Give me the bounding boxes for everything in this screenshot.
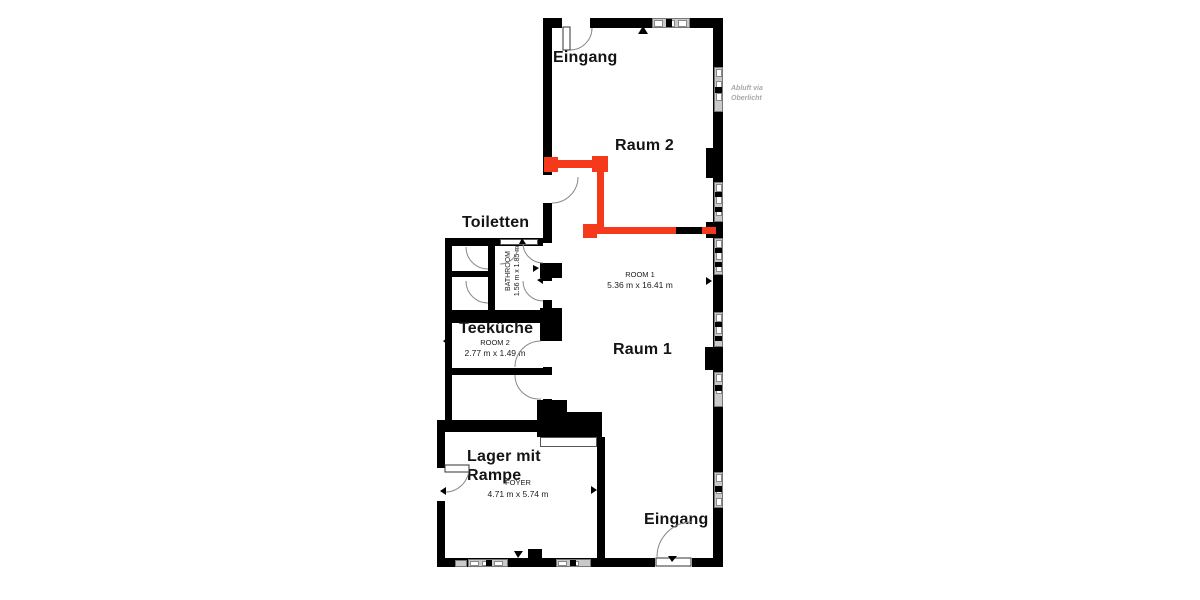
door-opening <box>437 468 445 501</box>
wall-segment <box>445 368 545 375</box>
label-teekueche-info: ROOM 2 2.77 m x 1.49 m <box>452 338 538 358</box>
wall-segment <box>706 148 723 178</box>
swing-marker-right-wall <box>706 277 712 285</box>
window-mark <box>715 207 722 212</box>
red-partition-segment <box>596 227 676 234</box>
window-pane <box>716 498 722 506</box>
door-opening <box>542 375 552 399</box>
floor-plan: Eingang Raum 2 Toiletten BATHROOM 1.56 m… <box>0 0 1200 600</box>
window-pane <box>716 196 722 204</box>
window-pane <box>716 314 722 322</box>
window-pane <box>558 561 567 566</box>
label-vent-note-line1: Abluft via <box>731 84 763 94</box>
door-arc-corridor-1 <box>523 243 543 263</box>
label-teekueche-dims: 2.77 m x 1.49 m <box>452 348 538 358</box>
label-vent-note: Abluft via Oberlicht <box>731 84 763 103</box>
window-pane <box>716 252 722 260</box>
label-foyer-dims: 4.71 m x 5.74 m <box>462 489 574 500</box>
label-vent-note-line2: Oberlicht <box>731 94 763 104</box>
red-partition-segment <box>702 227 716 234</box>
window-pane <box>716 474 722 482</box>
window-mark <box>715 87 722 93</box>
wall-segment <box>597 437 605 567</box>
label-teekueche-alt: ROOM 2 <box>452 338 538 348</box>
wall-segment <box>488 246 495 310</box>
label-foyer-alt: FOYER <box>462 478 574 489</box>
window-pane <box>654 20 663 27</box>
label-entrance-bottom: Eingang <box>644 511 709 529</box>
label-bathroom-dims: 1.56 m x 1.85 m <box>513 236 522 306</box>
label-bathroom-rotated: BATHROOM 1.56 m x 1.85 m <box>504 236 522 306</box>
door-arc-stall-2 <box>466 281 488 303</box>
door-arc-stall-1 <box>466 247 488 269</box>
window-pane <box>678 20 687 27</box>
door-leaf-entrance-top <box>563 27 570 50</box>
floor-plan-canvas: Eingang Raum 2 Toiletten BATHROOM 1.56 m… <box>0 0 1200 600</box>
window-mark <box>715 192 722 197</box>
door-opening <box>542 341 552 367</box>
window-mark <box>715 262 722 267</box>
door-arc-raum2 <box>552 177 578 203</box>
wall-segment <box>676 227 702 234</box>
door-opening <box>543 243 552 263</box>
red-partition-segment <box>556 160 596 168</box>
wall-segment <box>540 308 562 341</box>
wall-segment <box>528 549 542 558</box>
door-arc-corridor-2 <box>523 281 543 301</box>
threshold-outline <box>540 437 597 447</box>
label-entrance-top: Eingang <box>553 49 618 67</box>
door-opening <box>543 281 552 300</box>
wall-segment <box>540 263 562 278</box>
window-pane <box>470 561 479 566</box>
door-opening <box>655 558 692 567</box>
wall-segment <box>437 420 540 432</box>
label-room1-alt: ROOM 1 <box>588 269 692 280</box>
label-teekueche: Teeküche <box>459 320 533 338</box>
wall-segment <box>560 412 602 437</box>
label-raum-1: Raum 1 <box>613 341 672 359</box>
window-pane <box>716 93 722 101</box>
door-opening <box>562 18 590 28</box>
red-partition-segment <box>583 224 597 238</box>
window-mark <box>715 385 722 391</box>
window-pane <box>494 561 503 566</box>
wall-segment <box>445 238 452 425</box>
label-lager-line1: Lager mit <box>467 447 541 466</box>
window-mark <box>715 486 722 492</box>
label-room1-dims: 5.36 m x 16.41 m <box>588 280 692 291</box>
label-room1-info: ROOM 1 5.36 m x 16.41 m <box>588 269 692 291</box>
wall-segment <box>705 347 723 370</box>
door-arc-entrance-top <box>570 28 592 50</box>
window-mark <box>715 336 722 341</box>
wall-segment <box>452 271 495 277</box>
door-opening <box>543 175 552 203</box>
window-mark <box>715 248 722 253</box>
swing-marker-bottom-wall <box>514 551 523 558</box>
window-mark <box>715 322 722 327</box>
window-pane <box>716 240 722 248</box>
label-foyer-info: FOYER 4.71 m x 5.74 m <box>462 478 574 499</box>
window-mark <box>486 560 492 566</box>
red-partition-segment <box>597 170 604 230</box>
label-toiletten: Toiletten <box>462 214 529 232</box>
window-pane <box>716 69 722 77</box>
label-raum-2: Raum 2 <box>615 137 674 155</box>
swing-marker-corridor-1 <box>533 265 539 272</box>
window-pane <box>716 374 722 382</box>
window-pane <box>716 326 722 334</box>
door-arc-lower-room <box>515 375 541 399</box>
label-bathroom-name: BATHROOM <box>504 236 513 306</box>
door-leaf-foyer <box>445 465 469 472</box>
window-mark <box>666 19 672 27</box>
window <box>455 560 467 567</box>
window-pane <box>716 184 722 192</box>
window-mark <box>570 560 576 566</box>
